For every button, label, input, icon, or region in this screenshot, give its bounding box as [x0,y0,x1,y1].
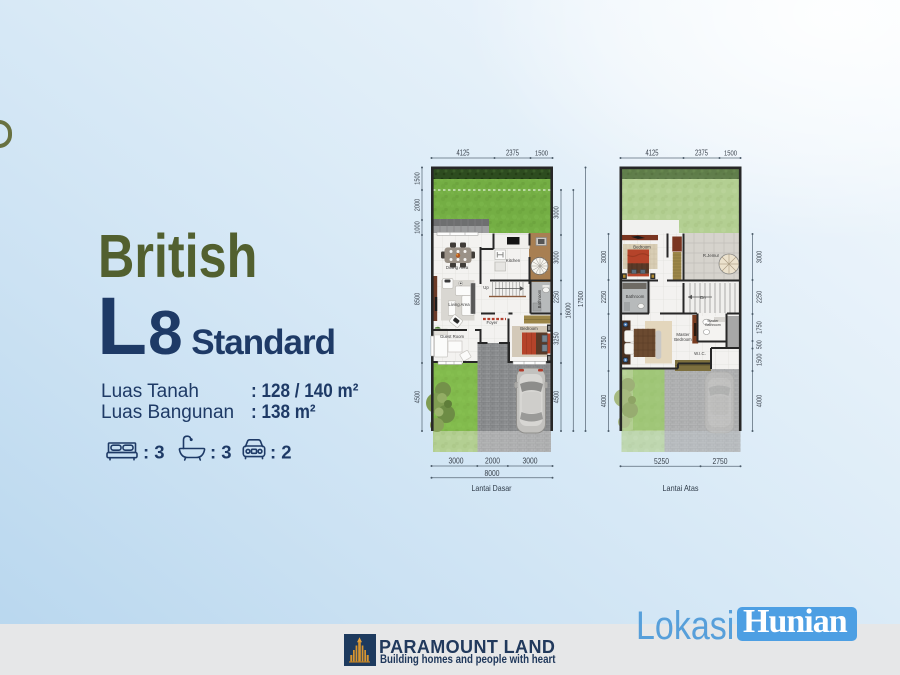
svg-text:Lantai Dasar: Lantai Dasar [472,484,512,493]
svg-text:1500: 1500 [412,172,421,185]
svg-text:Guest Room: Guest Room [440,334,465,339]
svg-text:Bedroom: Bedroom [520,326,538,331]
svg-text:3000: 3000 [449,455,464,465]
svg-text:2375: 2375 [506,147,519,157]
svg-text:3000: 3000 [551,206,560,219]
svg-text:Dining Area: Dining Area [446,265,469,270]
svg-text:Up: Up [483,285,489,290]
svg-text:1750: 1750 [754,321,763,334]
svg-text:16000: 16000 [564,303,573,319]
svg-text:3250: 3250 [551,332,560,345]
svg-text:R.Jemur: R.Jemur [703,253,720,258]
svg-text:1500: 1500 [535,148,548,157]
svg-text:8500: 8500 [412,293,421,306]
svg-text:2000: 2000 [485,455,500,465]
svg-text:2250: 2250 [551,291,560,304]
svg-text:4000: 4000 [599,395,608,408]
svg-text:3000: 3000 [551,251,560,264]
svg-text:1500: 1500 [724,148,737,157]
svg-text:1500: 1500 [754,354,763,367]
svg-text:Bathroom: Bathroom [705,323,721,327]
svg-text:17500: 17500 [576,291,585,307]
svg-text:2250: 2250 [599,291,608,304]
svg-text:2250: 2250 [754,291,763,304]
svg-text:4500: 4500 [412,391,421,404]
svg-text:3000: 3000 [523,455,538,465]
svg-text:Bathroom: Bathroom [537,289,542,308]
svg-text:4125: 4125 [457,147,470,157]
svg-text:Kitchen: Kitchen [506,258,521,263]
svg-text:Bedroom: Bedroom [633,245,651,250]
svg-text:Foyer: Foyer [487,320,499,325]
svg-text:5250: 5250 [654,456,669,466]
svg-text:3000: 3000 [754,251,763,264]
svg-text:Bedroom: Bedroom [674,337,692,342]
svg-text:Bathroom: Bathroom [626,294,645,299]
svg-text:2000: 2000 [412,199,421,212]
svg-text:4125: 4125 [646,147,659,157]
svg-text:3000: 3000 [599,251,608,264]
svg-text:2375: 2375 [695,147,708,157]
svg-text:4000: 4000 [754,395,763,408]
svg-text:4500: 4500 [551,391,560,404]
svg-text:500: 500 [754,340,763,349]
svg-text:Lantai Atas: Lantai Atas [663,484,699,493]
svg-text:Living Area: Living Area [448,302,470,307]
svg-text:3750: 3750 [599,336,608,349]
svg-text:2750: 2750 [713,456,728,466]
svg-text:8000: 8000 [485,468,500,478]
svg-text:Dn: Dn [700,295,706,300]
svg-text:1000: 1000 [412,221,421,234]
svg-text:W.I.C.: W.I.C. [694,351,706,356]
